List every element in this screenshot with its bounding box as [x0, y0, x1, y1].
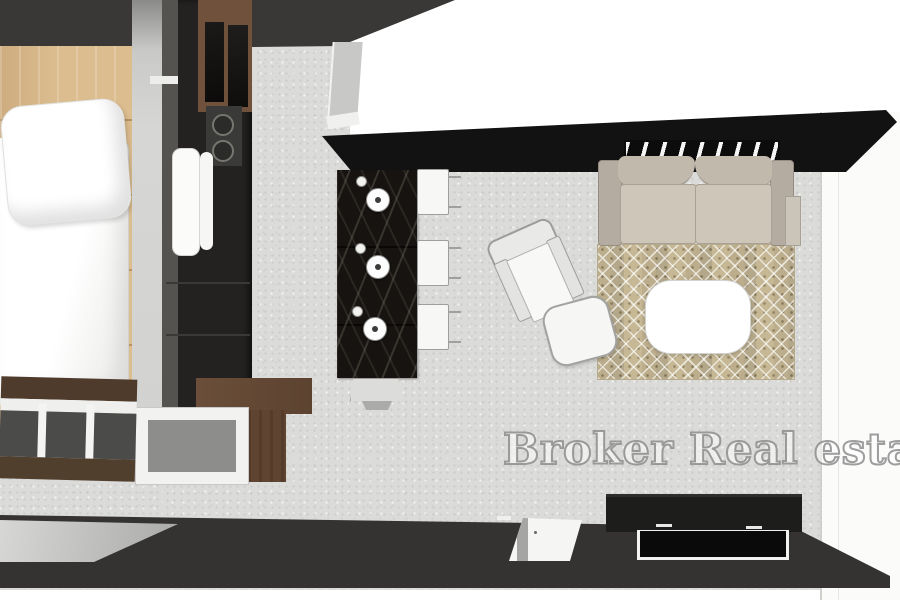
wall-shelf	[150, 76, 178, 84]
display-cabinet	[136, 408, 248, 484]
sofa	[598, 156, 792, 246]
pendant-cord	[355, 243, 366, 254]
bar-stool	[417, 304, 449, 350]
corridor-wall-line	[838, 112, 839, 600]
watermark-text: Broker Real estate	[503, 425, 900, 475]
coffee-table	[645, 280, 751, 354]
cabinet-shelf-line	[166, 282, 250, 284]
door-handle-dot	[534, 531, 537, 534]
bed-foot-bench	[0, 374, 137, 486]
fridge-door-handle	[200, 152, 213, 250]
tv-panel	[637, 530, 789, 560]
pendant-light	[366, 255, 390, 279]
glass-door-1	[205, 22, 224, 102]
fridge-door	[172, 148, 200, 256]
pendant-cord	[356, 176, 367, 187]
sofa-seat-cushion	[695, 184, 772, 244]
oven-knob	[212, 114, 234, 136]
pendant-light	[363, 317, 387, 341]
end-stool-seat	[350, 378, 404, 404]
bar-stool	[417, 240, 449, 286]
side-unit	[785, 196, 801, 246]
bar-stool	[417, 169, 449, 215]
tv-console	[606, 494, 802, 532]
bench-base	[0, 456, 135, 482]
sofa-seat-cushion	[620, 184, 697, 244]
bench-post	[85, 404, 94, 458]
console-foot-mark	[746, 526, 762, 529]
console-foot-mark	[656, 524, 672, 527]
bed-pillow	[0, 97, 133, 227]
white-corridor	[820, 112, 900, 600]
pendant-cord	[352, 306, 363, 317]
oven-knob	[212, 140, 234, 162]
pendant-light	[366, 188, 390, 212]
glass-door-2	[228, 25, 248, 107]
divider-wall	[132, 0, 164, 420]
bench-panel	[0, 410, 136, 460]
cabinet-shelf-line	[166, 334, 250, 336]
concrete-pillar	[327, 42, 362, 118]
bench-post	[37, 403, 46, 457]
door-sill-mark	[497, 516, 511, 520]
floor-plan-render: Broker Real estate	[0, 0, 900, 600]
